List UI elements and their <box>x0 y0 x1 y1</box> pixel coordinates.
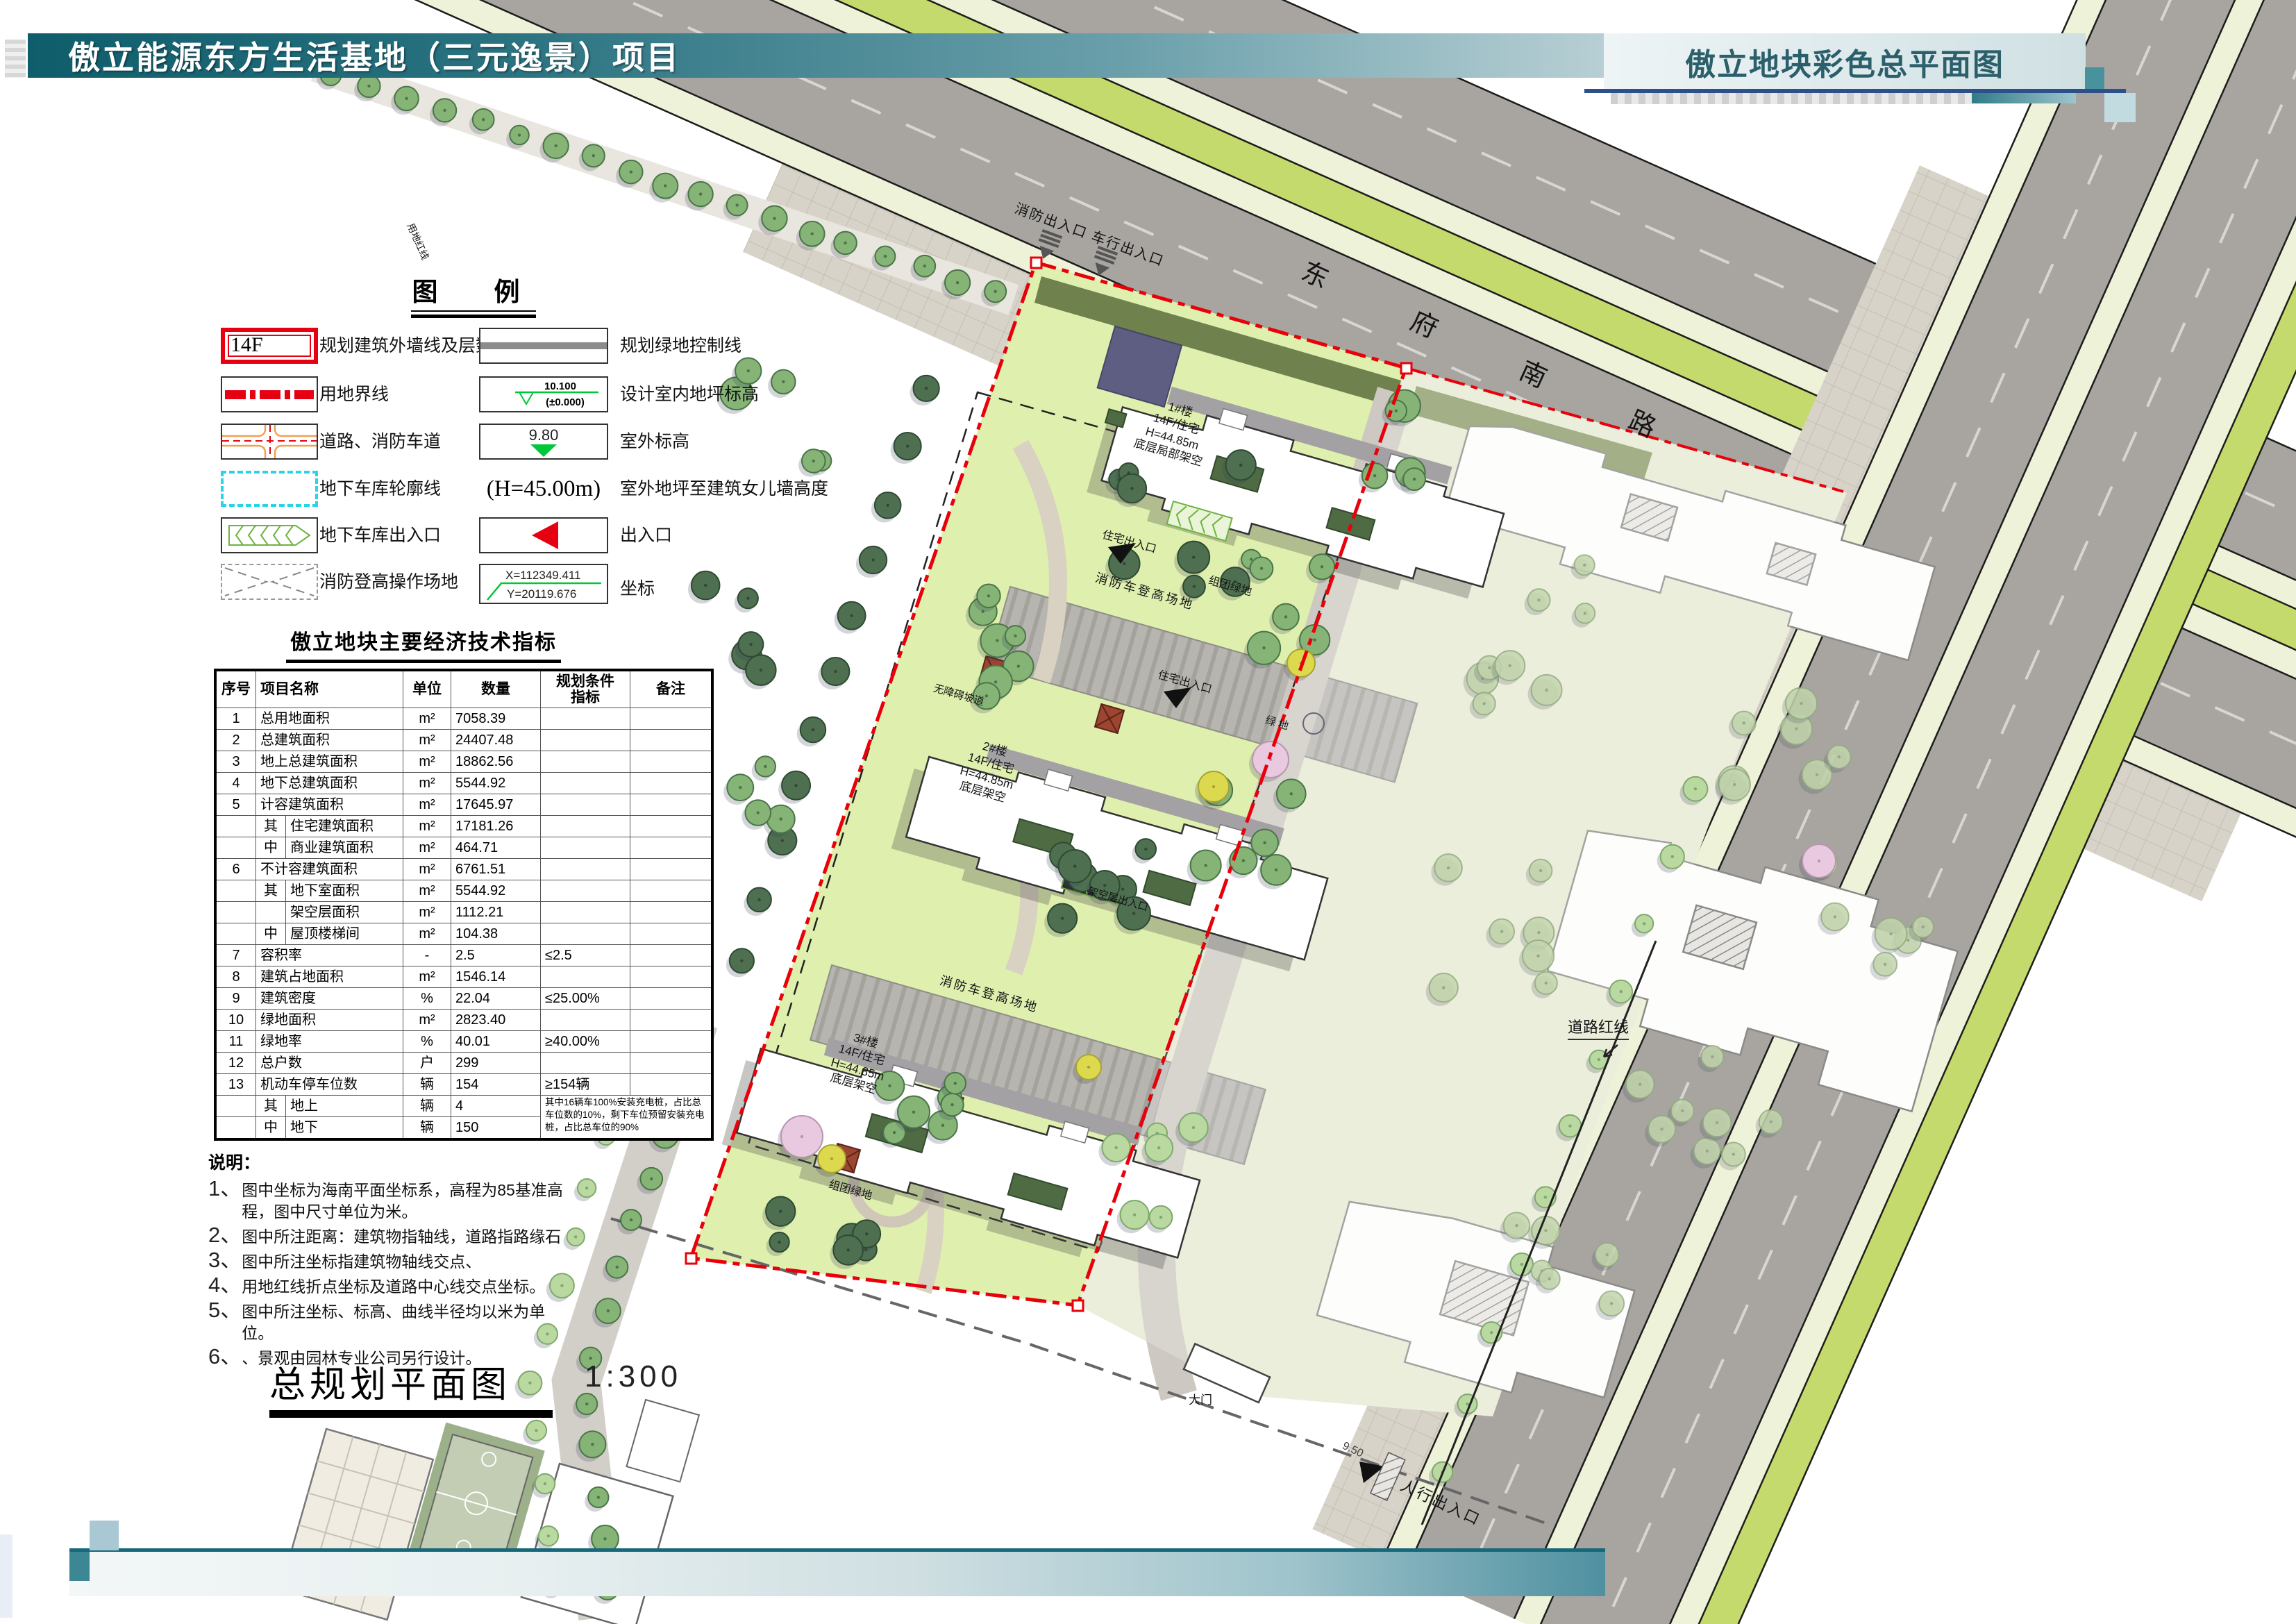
svg-text:Y=20119.676: Y=20119.676 <box>507 587 576 601</box>
svg-text:(±0.000): (±0.000) <box>546 396 585 408</box>
legend-coordinate-symbol: X=112349.411 Y=20119.676 <box>479 564 608 604</box>
svg-text:10.100: 10.100 <box>544 380 576 392</box>
legend-label: 消防登高操作场地 <box>319 564 458 600</box>
legend-label: 地下车库轮廓线 <box>319 471 441 507</box>
page-title: 傲立能源东方生活基地（三元逸景）项目 <box>68 33 680 78</box>
table-row: 其住宅建筑面积m²17181.26 <box>215 816 712 837</box>
footer-blue-square <box>90 1521 119 1550</box>
corner-decoration <box>5 40 26 78</box>
table-row: 8建筑占地面积m²1546.14 <box>215 966 712 988</box>
legend-label: 地下车库出入口 <box>319 517 441 553</box>
header-bar: 傲立能源东方生活基地（三元逸景）项目 <box>28 33 1604 78</box>
legend-label: 设计室内地坪标高 <box>620 376 759 412</box>
table-row: 6不计容建筑面积m²6761.51 <box>215 859 712 880</box>
note-item: 3、图中所注坐标指建筑物轴线交点、 <box>208 1248 576 1273</box>
legend-fire-area-symbol <box>221 564 318 600</box>
header-right-panel: 傲立地块彩色总平面图 <box>1604 33 2086 90</box>
existing-building-3 <box>626 1400 698 1482</box>
svg-text:X=112349.411: X=112349.411 <box>505 569 581 582</box>
header-teal-square <box>2085 67 2104 89</box>
site-plan-sheet: 东 府 南 路 消防出入口 车行出入口 用地红线 消防车登高场地 消防车登高场地… <box>0 0 2296 1624</box>
header-teal-strip <box>1972 93 2076 103</box>
table-row: 架空层面积m²1112.21 <box>215 902 712 923</box>
legend-label: 用地界线 <box>319 376 389 412</box>
table-row: 9建筑密度%22.04≤25.00% <box>215 988 712 1010</box>
plan-title-block: 总规划平面图 <box>269 1355 553 1418</box>
label-road-red-line: 道路红线 <box>1568 1015 1629 1040</box>
legend-garage-outline-symbol <box>221 471 318 507</box>
legend-garage-entrance-symbol <box>221 517 318 553</box>
legend-label: 道路、消防车道 <box>319 424 441 460</box>
legend-indoor-level-symbol: 10.100 (±0.000) <box>479 376 608 412</box>
header-light-square <box>2104 93 2136 122</box>
legend-title: 图 例 <box>411 271 536 318</box>
legend-outdoor-level-symbol: 9.80 <box>479 424 608 460</box>
legend-label: 规划绿地控制线 <box>620 328 741 364</box>
plan-title: 总规划平面图 <box>269 1355 553 1407</box>
note-item: 5、图中所注坐标、标高、曲线半径均以米为单位。 <box>208 1298 576 1344</box>
legend-label: 坐标 <box>620 571 655 607</box>
table-header-row: 序号 项目名称 单位 数量 规划条件 指标 备注 <box>215 670 712 708</box>
legend-sample-14f: 14F <box>231 333 263 357</box>
parking-remark: 其中16辆车100%安装充电桩，占比总车位数的10%，剩下车位预留安装充电桩，占… <box>541 1096 713 1140</box>
legend-building-outline-symbol: 14F <box>221 328 318 364</box>
table-row: 其地上辆4其中16辆车100%安装充电桩，占比总车位数的10%，剩下车位预留安装… <box>215 1096 712 1117</box>
plan-title-underline <box>269 1410 553 1418</box>
footer-left-strip <box>0 1534 12 1618</box>
table-title: 傲立地块主要经济技术指标 <box>286 625 561 663</box>
table-row: 中屋顶楼梯间m²104.38 <box>215 923 712 945</box>
legend-road-symbol <box>221 424 318 460</box>
plan-scale: 1:300 <box>585 1359 682 1394</box>
table-row: 7容积率-2.5≤2.5 <box>215 945 712 966</box>
table-row: 中商业建筑面积m²464.71 <box>215 837 712 859</box>
legend-land-boundary-symbol <box>221 376 318 412</box>
notes-block: 说明： 1、图中坐标为海南平面坐标系，高程为85基准高程，图中尺寸单位为米。 2… <box>208 1149 576 1370</box>
table-row: 13机动车停车位数辆154≥154辆 <box>215 1074 712 1096</box>
note-item: 2、图中所注距离：建筑物指轴线，道路指路缘石 <box>208 1223 576 1248</box>
legend-green-line-symbol <box>479 328 608 364</box>
table-row: 其地下室面积m²5544.92 <box>215 880 712 902</box>
notes-title: 说明： <box>208 1149 576 1174</box>
label-gate: 大门 <box>1189 1390 1212 1407</box>
table-row: 3地上总建筑面积m²18862.56 <box>215 751 712 773</box>
svg-text:9.80: 9.80 <box>529 426 559 444</box>
legend-label: 出入口 <box>620 517 672 553</box>
table-row: 5计容建筑面积m²17645.97 <box>215 794 712 816</box>
legend-entrance-symbol <box>479 517 608 553</box>
legend-label: 规划建筑外墙线及层数 <box>319 328 493 364</box>
legend-label: 室外地坪至建筑女儿墙高度 <box>620 471 828 507</box>
table-row: 10绿地面积m²2823.40 <box>215 1010 712 1031</box>
footer-gradient-bar <box>69 1552 1605 1596</box>
footer-teal-square <box>69 1552 90 1581</box>
note-item: 1、图中坐标为海南平面坐标系，高程为85基准高程，图中尺寸单位为米。 <box>208 1177 576 1223</box>
table-row: 12总户数户299 <box>215 1053 712 1074</box>
table-row: 11绿地率%40.01≥40.00% <box>215 1031 712 1053</box>
table-row: 1总用地面积m²7058.39 <box>215 708 712 730</box>
legend-parapet-height: (H=45.00m) <box>479 471 608 507</box>
note-item: 4、用地红线折点坐标及道路中心线交点坐标。 <box>208 1273 576 1298</box>
table-row: 2总建筑面积m²24407.48 <box>215 730 712 751</box>
table-row: 4地下总建筑面积m²5544.92 <box>215 773 712 794</box>
legend-label: 室外标高 <box>620 424 689 460</box>
header-gray-strip <box>1611 93 1972 104</box>
economic-indicator-table: 序号 项目名称 单位 数量 规划条件 指标 备注 1总用地面积m²7058.39… <box>214 669 714 1141</box>
drawing-title: 傲立地块彩色总平面图 <box>1685 40 2004 84</box>
